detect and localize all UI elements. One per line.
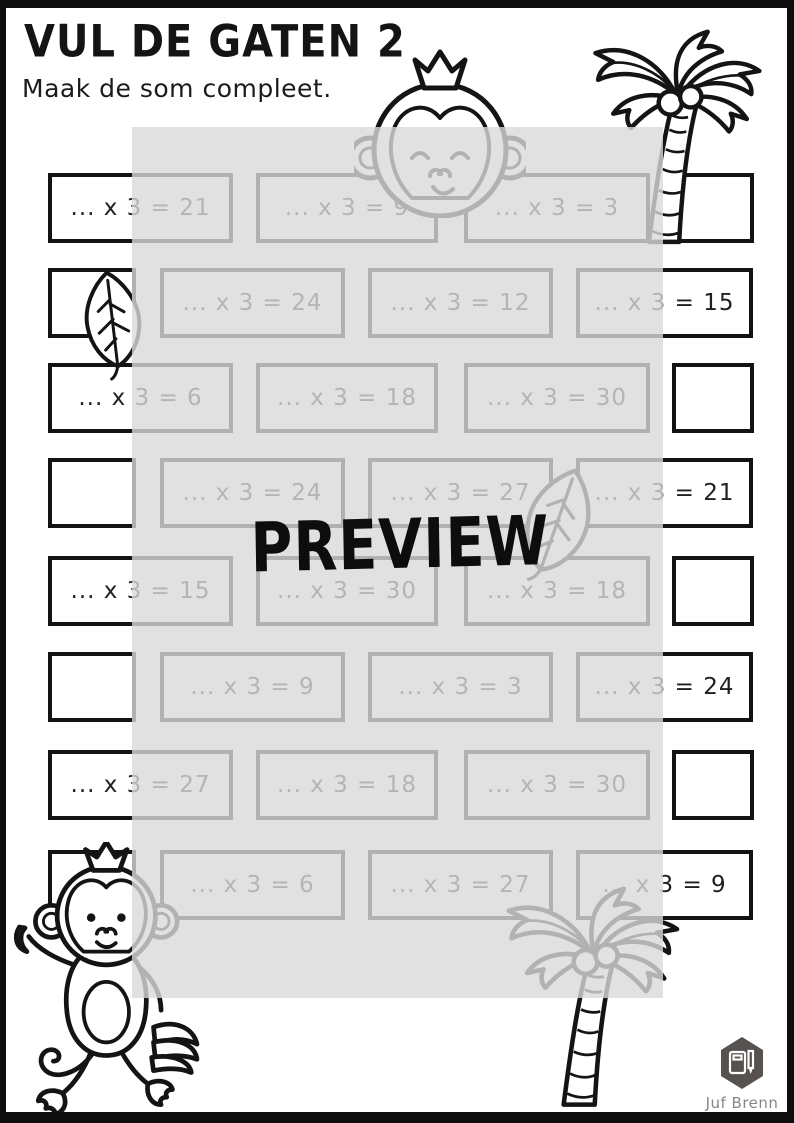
page-border-right (787, 0, 794, 1123)
brand-logo: Juf Brenn (702, 1036, 782, 1112)
page-border-left (0, 0, 6, 1123)
empty-box (672, 363, 754, 433)
brand-name: Juf Brenn (702, 1094, 782, 1112)
preview-watermark: PREVIEW (249, 502, 550, 589)
empty-box (48, 652, 136, 722)
empty-box (672, 556, 754, 626)
empty-box (672, 750, 754, 820)
page-border-top (0, 0, 794, 8)
worksheet-page: VUL DE GATEN 2 Maak de som compleet. ...… (0, 0, 794, 1123)
brand-hexagon-icon (717, 1036, 767, 1090)
page-border-bottom (0, 1112, 794, 1123)
empty-box (48, 458, 136, 528)
